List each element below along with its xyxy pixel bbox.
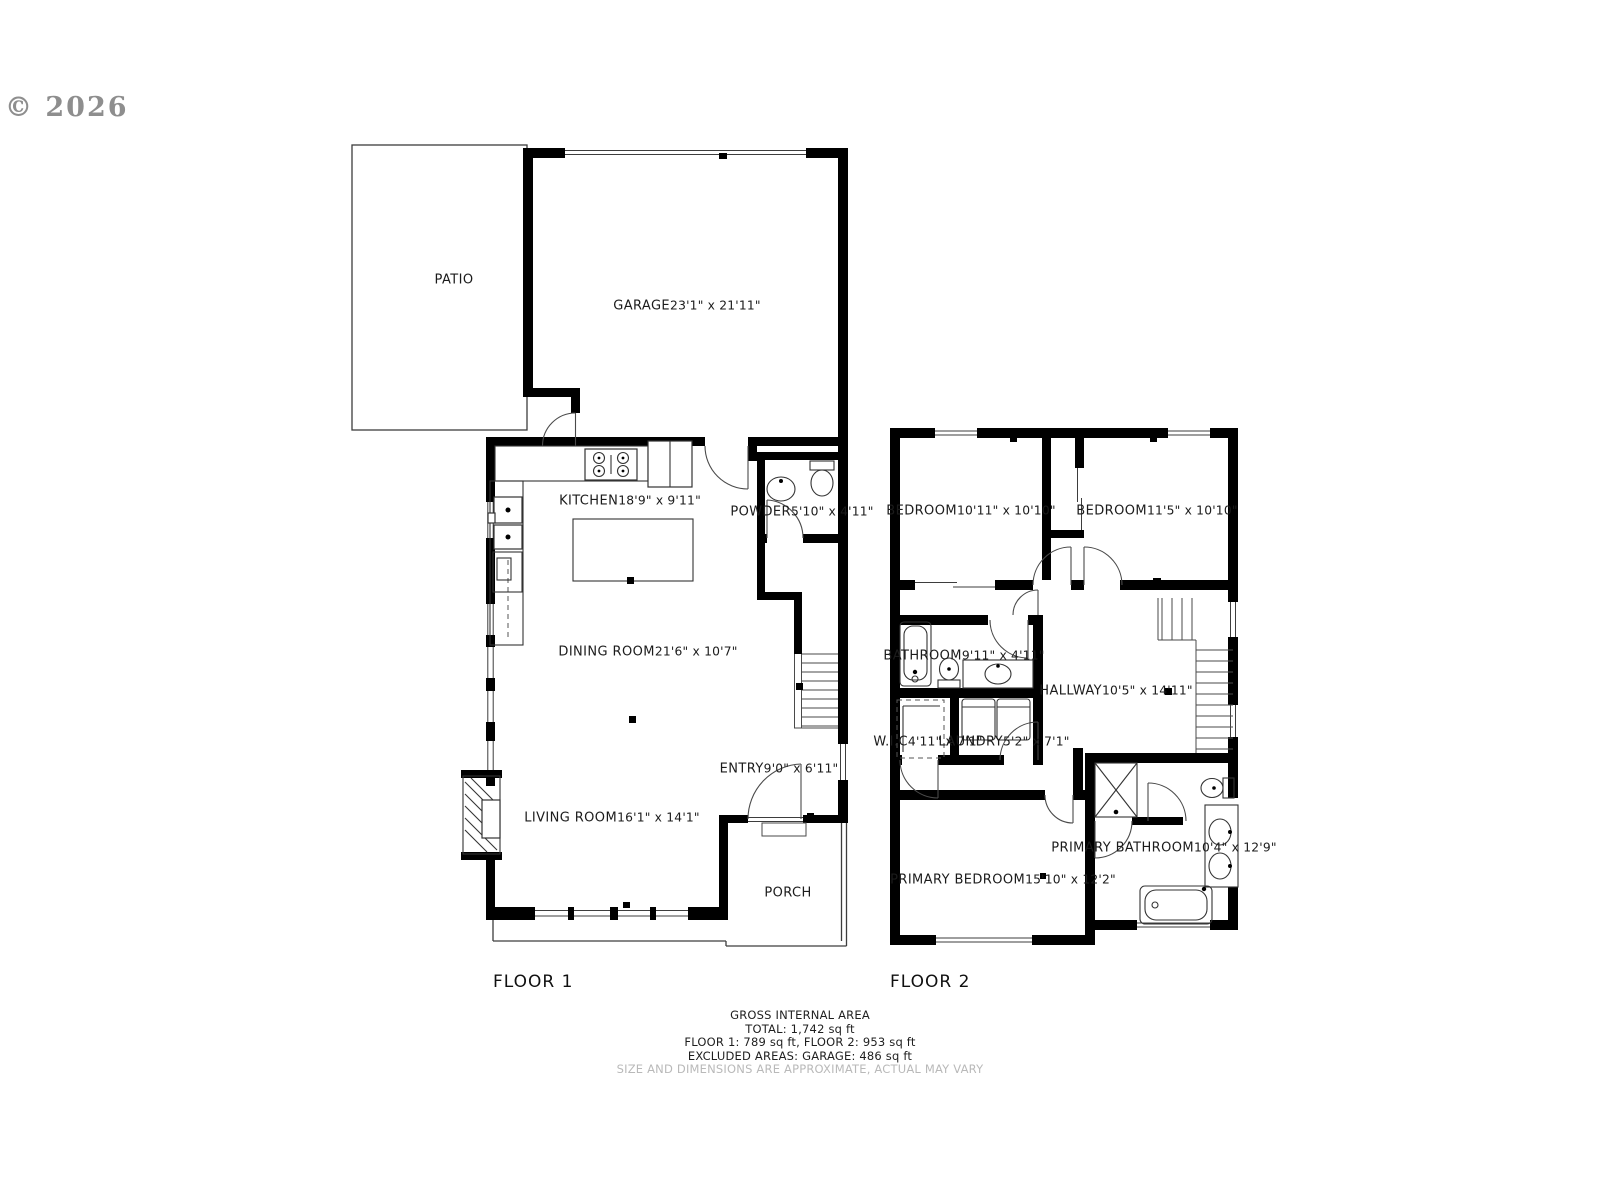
room-name: DINING ROOM (558, 645, 654, 660)
room-name: PORCH (764, 886, 811, 901)
shower-icon (1095, 763, 1137, 817)
room-label-laundry: LAUNDRY5'2" x 7'1" (938, 735, 1069, 750)
room-dims: 9'11" x 4'11" (962, 649, 1045, 663)
kitchen-fixtures (488, 441, 693, 645)
room-dims: 18'9" x 9'11" (618, 494, 701, 508)
room-label-dining: DINING ROOM21'6" x 10'7" (558, 645, 737, 660)
room-label-bedroom2: BEDROOM11'5" x 10'10" (1076, 504, 1237, 519)
stove-icon (585, 449, 637, 480)
disclaimer: SIZE AND DIMENSIONS ARE APPROXIMATE, ACT… (560, 1063, 1040, 1077)
room-dims: 21'6" x 10'7" (655, 645, 738, 659)
floor1-wall-ticks (623, 153, 814, 908)
room-label-hallway: HALLWAY10'5" x 14'11" (1039, 684, 1192, 699)
floorplan-page: © 2026 (0, 0, 1600, 1200)
room-dims: 11'5" x 10'10" (1147, 504, 1238, 518)
room-name: KITCHEN (559, 494, 618, 509)
room-name: HALLWAY (1039, 684, 1102, 699)
floor1-windows (488, 148, 846, 916)
floor2-stairs (1158, 598, 1233, 753)
room-dims: 10'4" x 12'9" (1194, 841, 1277, 855)
room-label-primary-bedroom: PRIMARY BEDROOM15'10" x 12'2" (890, 873, 1116, 888)
room-dims: 23'1" x 21'11" (670, 299, 761, 313)
floor1-walls (486, 148, 848, 920)
powder-sink-icon (767, 477, 795, 501)
kitchen-island (573, 519, 693, 581)
room-label-primary-bathroom: PRIMARY BATHROOM10'4" x 12'9" (1051, 841, 1276, 856)
room-name: POWDER (730, 505, 791, 520)
room-label-patio: PATIO (435, 273, 474, 288)
room-name: PATIO (435, 273, 474, 288)
floor1-plan (352, 145, 848, 946)
room-dims: 5'10" x 4'11" (791, 505, 874, 519)
room-label-powder: POWDER5'10" x 4'11" (730, 505, 873, 520)
floor2-title: FLOOR 2 (890, 972, 970, 992)
excluded-areas: EXCLUDED AREAS: GARAGE: 486 sq ft (560, 1050, 1040, 1064)
bathroom-sink-icon (963, 660, 1033, 688)
room-name: LIVING ROOM (524, 811, 617, 826)
fireplace-icon (461, 770, 502, 860)
porch-outline (493, 823, 847, 946)
room-label-porch: PORCH (764, 886, 811, 901)
room-name: PRIMARY BEDROOM (890, 873, 1025, 888)
floor1-title: FLOOR 1 (493, 972, 573, 992)
floor-areas: FLOOR 1: 789 sq ft, FLOOR 2: 953 sq ft (560, 1036, 1040, 1050)
room-name: GARAGE (613, 299, 670, 314)
total-area: TOTAL: 1,742 sq ft (560, 1023, 1040, 1037)
room-label-kitchen: KITCHEN18'9" x 9'11" (559, 494, 701, 509)
room-label-entry: ENTRY9'0" x 6'11" (720, 762, 839, 777)
room-label-bedroom1: BEDROOM10'11" x 10'10" (886, 504, 1055, 519)
room-name: W.I.C (873, 735, 908, 750)
room-name: ENTRY (720, 762, 764, 777)
room-dims: 10'11" x 10'10" (957, 504, 1056, 518)
gross-internal-area-title: GROSS INTERNAL AREA (560, 1009, 1040, 1023)
primary-tub-icon (1140, 886, 1212, 924)
floor1-stairs (794, 654, 838, 728)
room-dims: 9'0" x 6'11" (764, 762, 839, 776)
room-dims: 15'10" x 12'2" (1025, 873, 1116, 887)
patio-outline (352, 145, 527, 430)
room-dims: 16'1" x 14'1" (617, 811, 700, 825)
room-label-garage: GARAGE23'1" x 21'11" (613, 299, 761, 314)
room-dims: 10'5" x 14'11" (1102, 684, 1193, 698)
room-name: BEDROOM (1076, 504, 1147, 519)
powder-toilet-icon (810, 461, 834, 496)
room-name: PRIMARY BATHROOM (1051, 841, 1194, 856)
room-label-living: LIVING ROOM16'1" x 14'1" (524, 811, 700, 826)
room-dims: 5'2" x 7'1" (1003, 735, 1070, 749)
powder-fixtures (767, 461, 834, 501)
area-summary: GROSS INTERNAL AREA TOTAL: 1,742 sq ft F… (560, 1009, 1040, 1077)
room-name: BEDROOM (886, 504, 957, 519)
room-label-bathroom: BATHROOM9'11" x 4'11" (883, 649, 1044, 664)
room-name: LAUNDRY (938, 735, 1003, 750)
fridge-icon (648, 441, 692, 487)
room-name: BATHROOM (883, 649, 961, 664)
